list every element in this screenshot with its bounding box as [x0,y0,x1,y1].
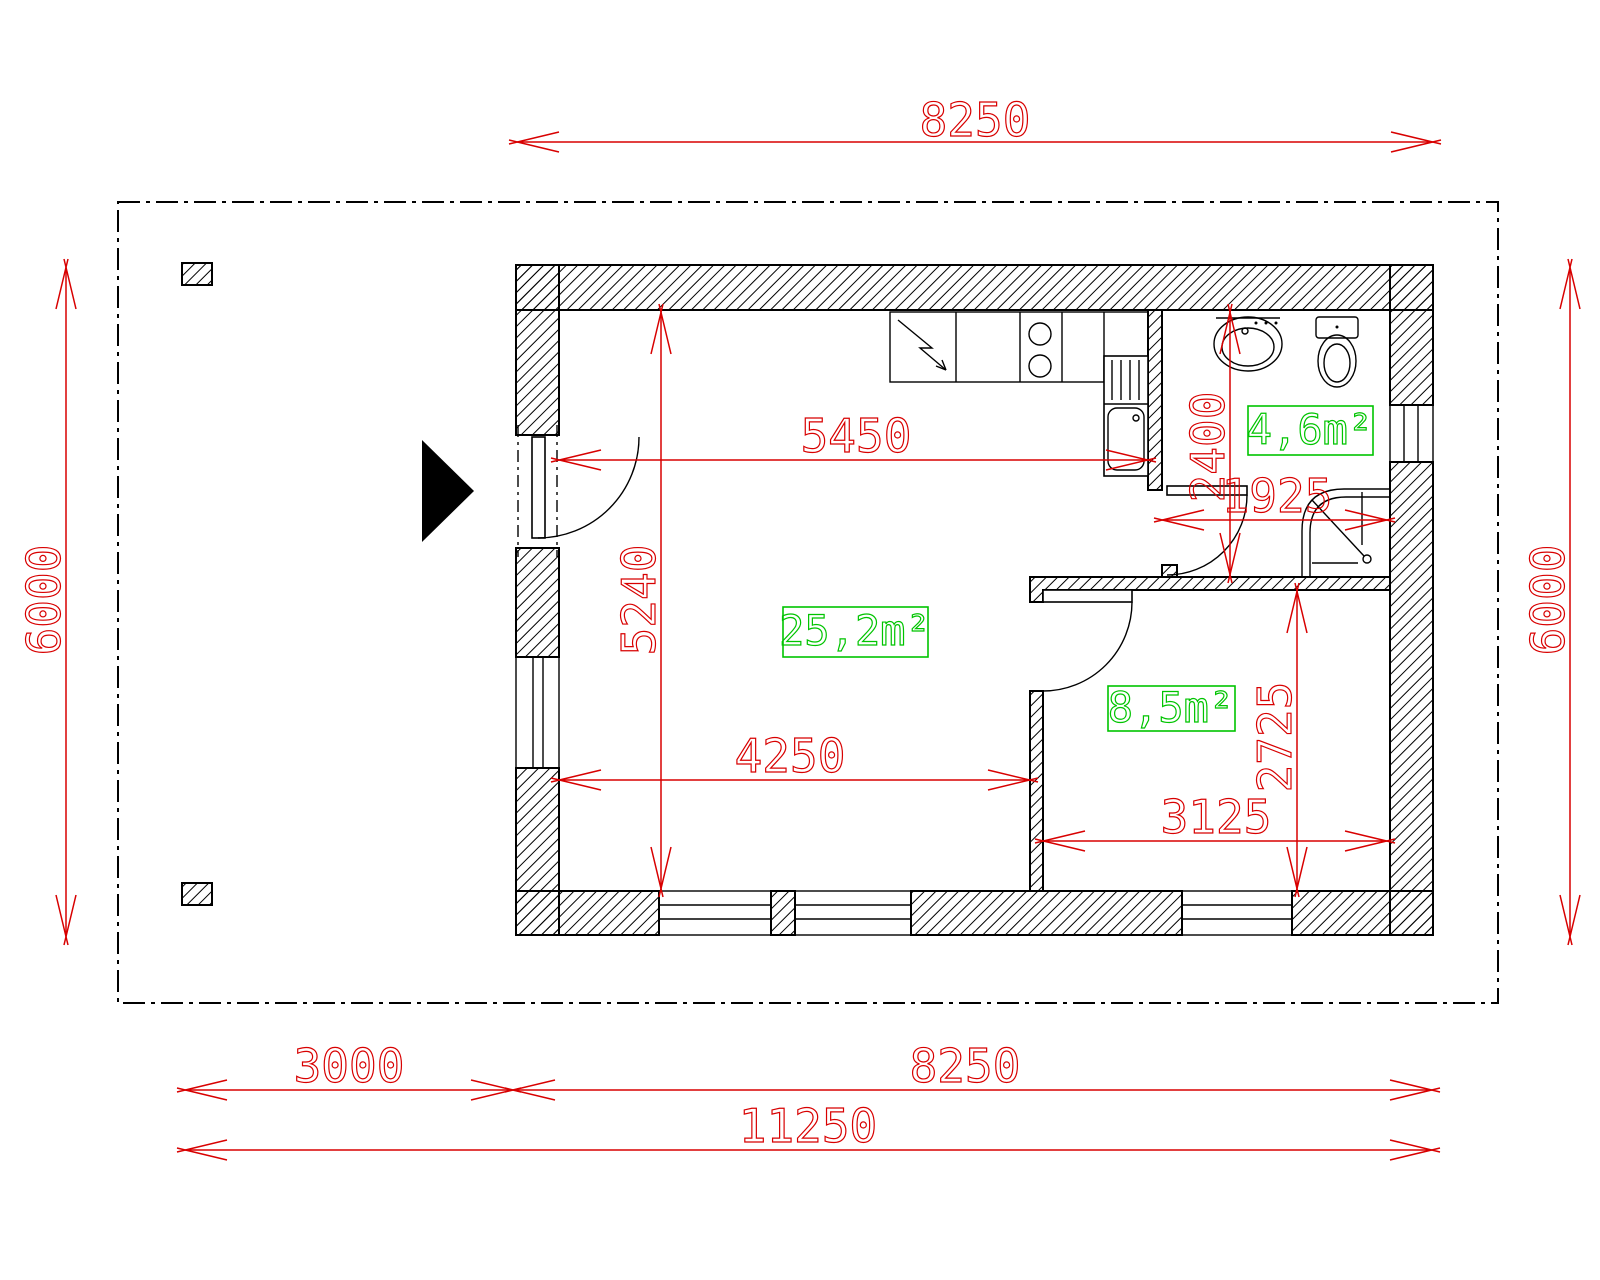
bedroom-door-swing-arc [1043,602,1132,691]
window-bottom-left [659,891,771,935]
dim-label-bottom-total: 11250 [739,1099,877,1153]
toilet-fixture [1316,317,1358,387]
wall-bedroom-west [1030,691,1043,891]
wall-bottom-b [911,891,1182,935]
dim-label-left-height: 6000 [17,545,71,656]
dimension-living-width-bottom: 4250 [551,729,1038,790]
dimension-bedroom-width: 3125 [1035,790,1395,851]
dimension-living-height: 5240 [612,304,671,897]
bedroom-door-leaf [1043,590,1132,602]
window-right-bathroom [1390,405,1433,462]
boundary-posts [182,263,212,905]
window-left [516,657,559,768]
dim-label-bedroom-height: 2725 [1248,682,1302,793]
wall-bottom-pier [771,891,795,935]
dim-label-bottom-right-segment: 8250 [910,1039,1021,1093]
dimension-living-width-top: 5450 [551,409,1156,470]
post-bottom-icon [182,883,212,905]
wall-right-upper [1390,265,1433,405]
wall-top [516,265,1433,310]
entrance-door-swing-arc [538,437,639,538]
dimension-bedroom-height: 2725 [1248,583,1307,897]
area-label-living-room-text: 25,2m² [779,606,931,655]
dimension-top-width: 8250 [509,93,1441,152]
floor-plan-page: 8250 6000 6000 5450 5240 [0,0,1600,1280]
wall-left-upper [516,265,559,435]
dim-label-top-width: 8250 [920,93,1031,147]
window-bottom-mid [795,891,911,935]
dimension-bathroom-height: 2400 [1181,304,1240,583]
electric-stove-symbol [898,320,946,370]
dim-label-living-width-top: 5450 [801,409,912,463]
post-top-icon [182,263,212,285]
property-boundary [118,202,1498,1003]
wall-right-lower [1390,462,1433,935]
entrance-arrow-icon [422,440,474,542]
dim-label-living-width-bottom: 4250 [735,729,846,783]
bedroom-door [1043,590,1132,691]
entrance-door-leaf [532,437,545,538]
entrance-door [516,425,639,557]
wall-bottom-a [516,891,659,935]
area-label-bathroom: 4,6m² [1247,405,1373,455]
dim-label-right-height: 6000 [1521,545,1575,656]
dimension-bottom-left-segment: 3000 [177,1039,555,1100]
washbasin-fixture [1214,317,1282,371]
dim-label-bottom-left-segment: 3000 [294,1039,405,1093]
dim-label-bathroom-width: 1925 [1222,469,1333,523]
area-label-bedroom: 8,5m² [1108,683,1235,732]
dimension-bottom-right-segment: 8250 [513,1039,1440,1100]
cooktop-burners [1029,323,1051,377]
dimension-right-height: 6000 [1521,259,1580,945]
floor-plan-canvas: 8250 6000 6000 5450 5240 [0,0,1600,1280]
window-bottom-bedroom [1182,891,1292,935]
area-label-bathroom-text: 4,6m² [1247,405,1373,454]
dimension-left-height: 6000 [17,259,76,945]
wall-bathroom-west [1148,310,1162,490]
wall-left-mid [516,548,559,657]
dim-label-living-height: 5240 [612,545,666,656]
dimension-bottom-total: 11250 [177,1099,1440,1160]
area-label-bedroom-text: 8,5m² [1108,683,1234,732]
dim-label-bedroom-width: 3125 [1161,790,1272,844]
area-label-living-room: 25,2m² [779,606,931,657]
